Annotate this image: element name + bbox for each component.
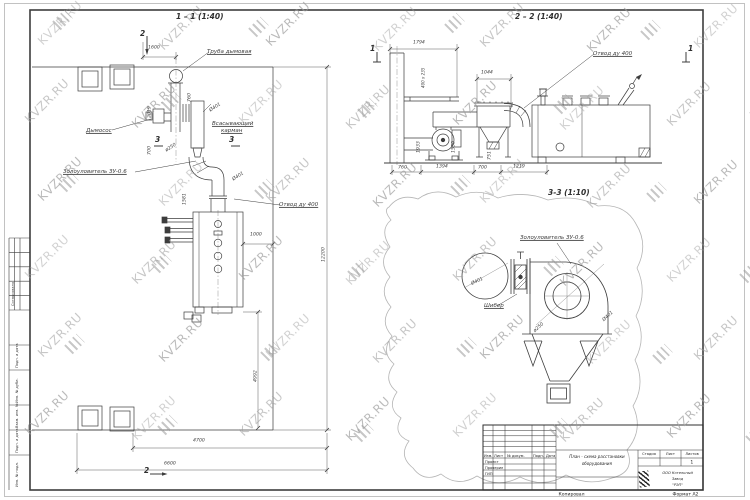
label-damper: Шибер <box>484 302 504 309</box>
label-ash-detail: Золоуловитель ЗУ-0.6 <box>520 234 584 241</box>
frame-inv-dubl: Инв. № дубл. <box>15 378 19 403</box>
tb-company-line1: ООО Котельный <box>652 471 703 475</box>
view-1-1-title: 1 – 1 (1:40) <box>176 12 224 21</box>
dim-700-elev: 700 <box>478 164 487 170</box>
company-logo <box>638 471 650 488</box>
tb-title-line1: План - схема расстановки <box>556 455 638 459</box>
dim-1219: 1219 <box>513 163 525 169</box>
plan-dimensions <box>75 42 331 474</box>
label-otvod-plan: Отвод ду 400 <box>279 201 318 208</box>
view-plan <box>32 36 280 476</box>
dim-1600: 1600 <box>148 44 160 50</box>
frame-podp-data-1: Подп. и дата <box>15 343 19 368</box>
label-suction-1: Всасывающий <box>212 120 253 127</box>
dim-1000-plan: 1000 <box>250 231 262 237</box>
drawing-frame <box>9 10 703 490</box>
label-fan: Дымосос <box>86 127 112 134</box>
frame-soglasovano: Согласовано <box>11 282 15 306</box>
marker-2-top: 2 <box>140 29 145 38</box>
revision-cloud <box>384 192 643 483</box>
dim-1550: 1550 <box>450 141 456 153</box>
tb-stage-label: Стадия <box>638 452 660 456</box>
dim-4700: 4700 <box>193 437 205 443</box>
dim-760-plan: 760 <box>186 93 192 102</box>
dim-2019: 2019 <box>146 106 152 118</box>
dim-4992: 4992 <box>252 370 258 382</box>
tb-col-podp: Подп. <box>533 454 544 458</box>
tb-role-project: Проект <box>485 460 499 464</box>
dim-1044: 1044 <box>481 69 493 75</box>
tb-sheets-value: 1 <box>681 460 703 465</box>
tb-col-izm: Изм. <box>484 454 492 458</box>
tb-sheets-label: Листов <box>681 452 703 456</box>
tb-role-gip: ГИП <box>485 472 493 476</box>
view-3-3-title: 3-3 (1:10) <box>548 188 590 197</box>
view-2-2-title: 2 – 2 (1:40) <box>515 12 563 21</box>
drawing-canvas <box>0 0 750 500</box>
tb-sheet-label: Лист <box>660 452 681 456</box>
marker-1-left: 1 <box>370 44 375 53</box>
tb-format-label: Формат А2 <box>626 492 745 497</box>
tb-company-line2: Завод <box>652 477 703 481</box>
dim-1394: 1394 <box>436 163 448 169</box>
label-ash-plan: Золоуловитель ЗУ-0.6 <box>63 168 127 175</box>
tb-copied-label: Копировал <box>512 492 631 497</box>
label-suction-2: карман <box>221 127 242 134</box>
label-otvod-elev: Отвод ду 400 <box>593 50 632 57</box>
dim-700-plan: 700 <box>146 146 152 155</box>
frame-podp-data-2: Подп. и дата <box>15 428 19 453</box>
label-chimney: Труба дымовая <box>207 48 251 55</box>
dim-1581: 1581 <box>181 193 187 205</box>
dim-760-elev: 760 <box>398 164 407 170</box>
frame-vzam-inv: Взам. инв. № <box>15 404 19 428</box>
dim-12200: 12200 <box>320 247 326 262</box>
tb-company-line3: "РЭП" <box>652 483 703 487</box>
dim-400x235: 400 х 235 <box>421 68 426 88</box>
sheet-frame <box>5 4 745 497</box>
frame-inv-podl: Инв. № подл. <box>15 462 19 487</box>
drawing-sheet: Изм. Лист № докум. Подп. Дата Проект Про… <box>0 0 750 500</box>
elevation-dimensions <box>388 44 549 175</box>
marker-2-bottom: 2 <box>144 466 149 475</box>
view-detail <box>384 192 643 483</box>
tb-col-data: Дата <box>546 454 555 458</box>
tb-col-list: Лист <box>494 454 503 458</box>
marker-1-right: 1 <box>688 44 693 53</box>
tb-role-checked: Проверил <box>485 466 503 470</box>
marker-3-left: 3 <box>155 135 160 144</box>
marker-3-right: 3 <box>229 135 234 144</box>
tb-col-ndoc: № докум. <box>507 454 525 458</box>
tb-title-line2: оборудования <box>556 462 638 466</box>
dim-1933: 1933 <box>415 141 421 153</box>
dim-751: 751 <box>486 151 492 160</box>
dim-6600: 6600 <box>164 460 176 466</box>
dim-1794: 1794 <box>413 39 425 45</box>
